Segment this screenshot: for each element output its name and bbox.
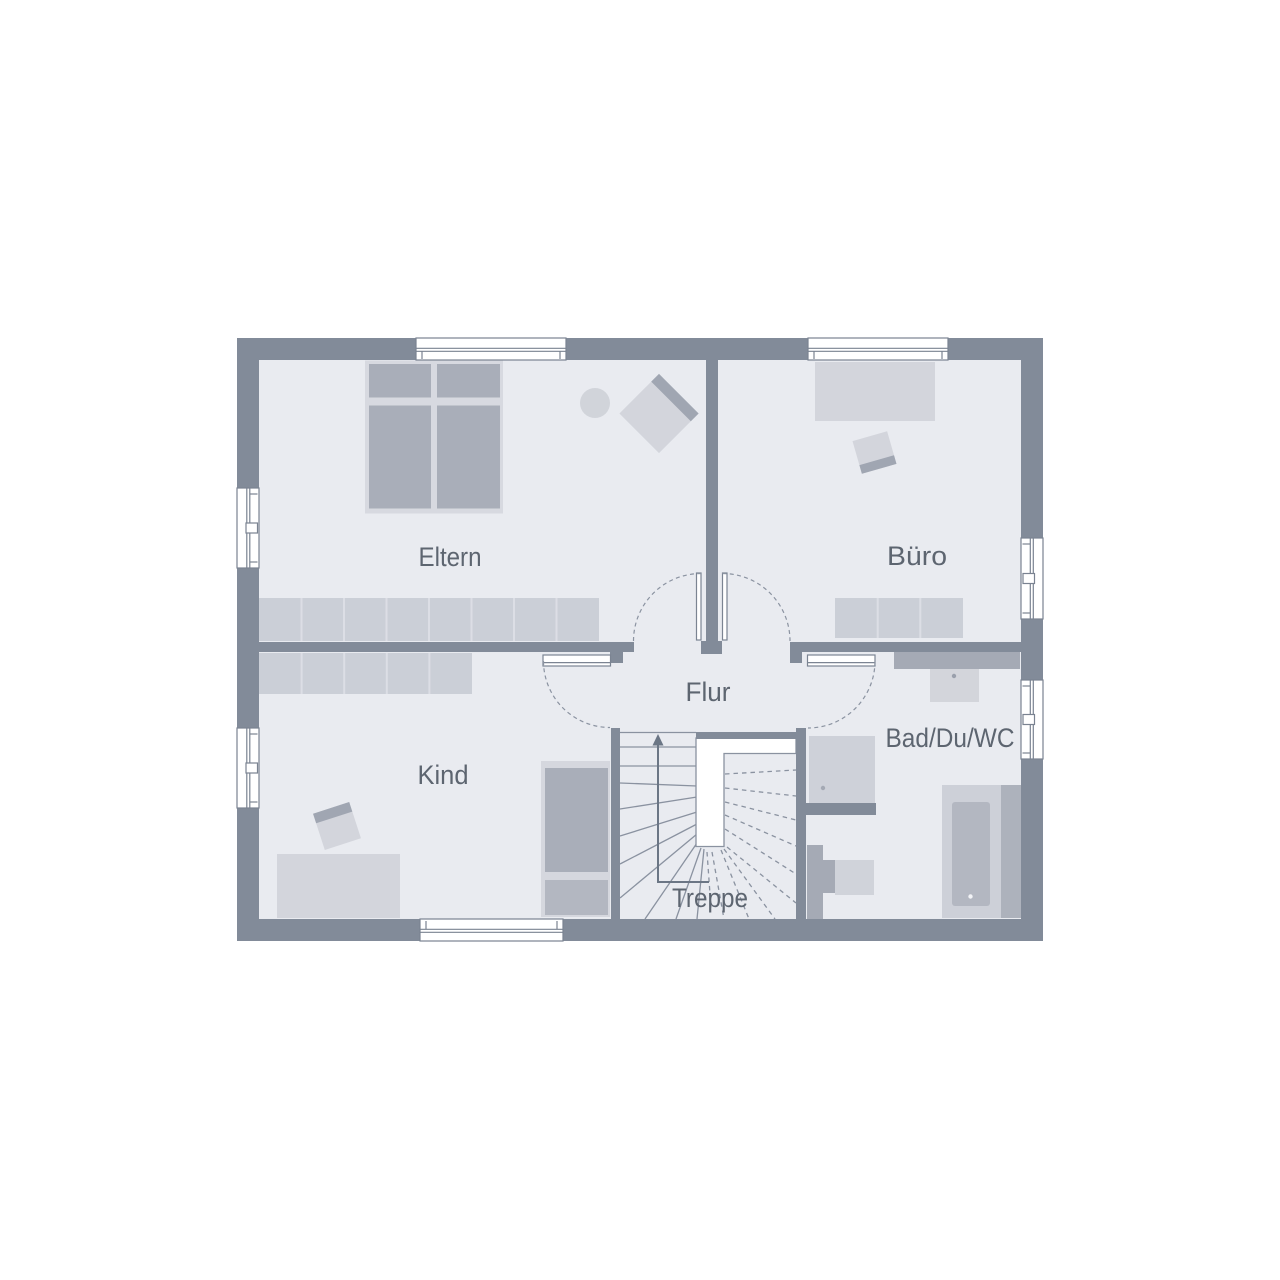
svg-text:Flur: Flur: [686, 677, 731, 707]
svg-text:Kind: Kind: [418, 760, 469, 790]
svg-text:Büro: Büro: [887, 541, 947, 571]
svg-text:Bad/Du/WC: Bad/Du/WC: [886, 723, 1015, 753]
svg-text:Eltern: Eltern: [419, 542, 482, 572]
svg-text:Treppe: Treppe: [672, 883, 748, 913]
